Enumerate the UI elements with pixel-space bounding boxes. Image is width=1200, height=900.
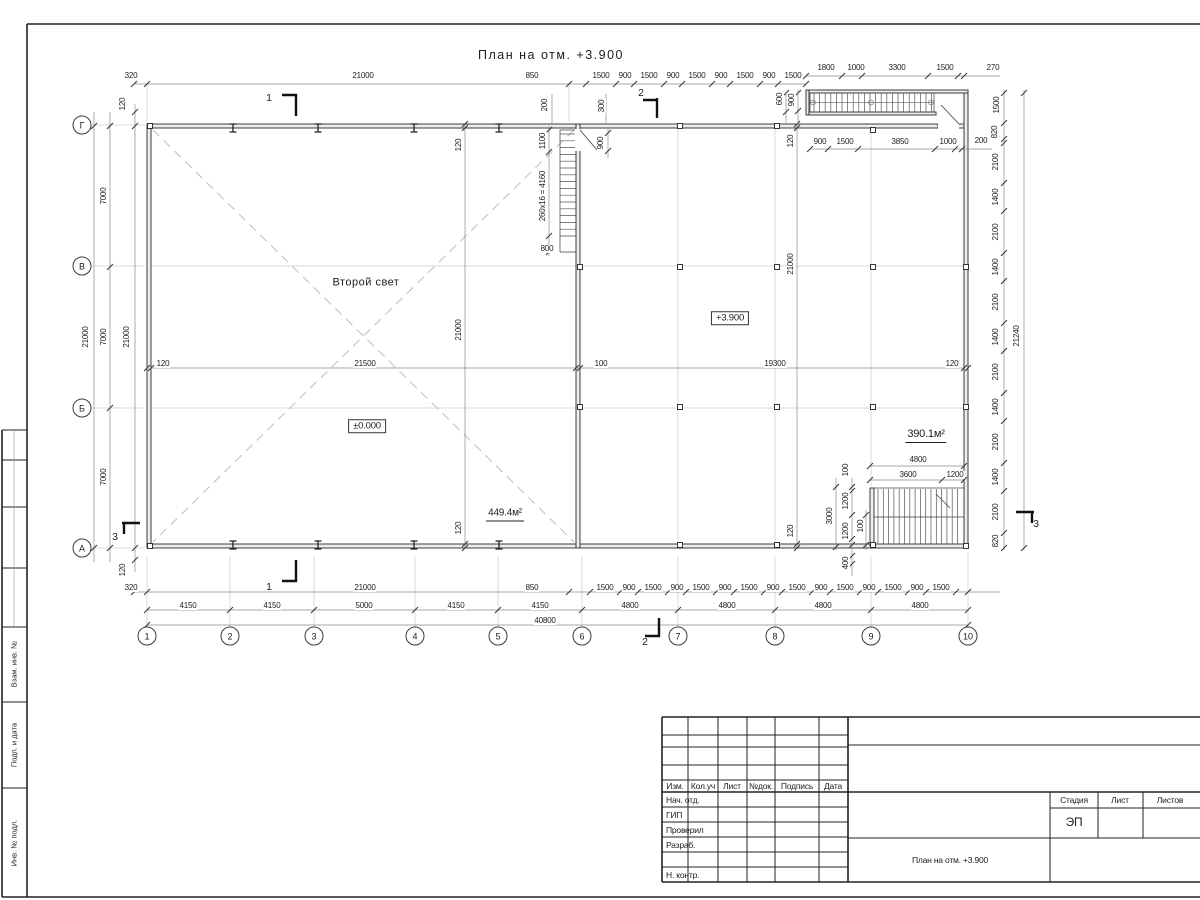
axis-bubble-2: 2 xyxy=(221,627,240,646)
dim-label: 120 xyxy=(455,521,463,536)
annotation-label: 1 xyxy=(265,582,273,593)
annotation-label: 3 xyxy=(1032,519,1040,530)
dim-label: 120 xyxy=(945,360,960,368)
dim-label: 270 xyxy=(986,64,1001,72)
stamp-vzam: Взам. инв. № xyxy=(10,641,19,687)
square-column xyxy=(775,405,780,410)
dim-label: 1200 xyxy=(842,492,850,511)
square-column xyxy=(148,544,153,549)
dim-label: 820 xyxy=(991,125,999,140)
dim-label: 900 xyxy=(788,93,796,108)
dim-label: 3600 xyxy=(899,471,918,479)
dim-label: 1500 xyxy=(788,584,807,592)
dim-label: 40800 xyxy=(533,617,556,625)
dim-label: 1400 xyxy=(992,188,1000,207)
dim-label: 1100 xyxy=(539,132,547,150)
dim-label: 21000 xyxy=(455,318,463,341)
dim-label: 3850 xyxy=(891,138,910,146)
square-column xyxy=(964,405,969,410)
square-column xyxy=(678,265,683,270)
dim-label: 320 xyxy=(124,584,139,592)
dim-label: 1500 xyxy=(596,584,615,592)
axis-bubble-5: 5 xyxy=(489,627,508,646)
stage-label: Стадия xyxy=(1059,796,1089,805)
dim-label: 4800 xyxy=(909,456,928,464)
dim-label: 2100 xyxy=(992,433,1000,452)
square-column xyxy=(148,124,153,129)
axis-bubble-1: 1 xyxy=(138,627,157,646)
columns xyxy=(148,124,969,550)
tb-role-1: ГИП xyxy=(665,811,683,820)
dim-label: 4800 xyxy=(621,602,640,610)
dim-label: 4150 xyxy=(447,602,466,610)
dim-label: 900 xyxy=(862,584,877,592)
dim-label: 1500 xyxy=(640,72,659,80)
tb-header-3: №док. xyxy=(748,782,774,791)
square-column xyxy=(578,265,583,270)
dim-label: 900 xyxy=(766,584,781,592)
stair-top-middle xyxy=(560,130,576,252)
dim-label: 800 xyxy=(540,245,555,253)
square-column xyxy=(871,265,876,270)
dim-label: 1500 xyxy=(736,72,755,80)
dim-label: 5000 xyxy=(355,602,374,610)
dim-label: 900 xyxy=(670,584,685,592)
dim-label: 120 xyxy=(119,97,127,112)
dim-label: 1500 xyxy=(836,584,855,592)
dim-label: 1800 xyxy=(817,64,836,72)
dim-label: 900 xyxy=(813,138,828,146)
axis-bubble-6: 6 xyxy=(573,627,592,646)
void-cross-dashed xyxy=(153,130,574,542)
dim-label: 2100 xyxy=(992,153,1000,172)
walls xyxy=(147,90,968,548)
dim-label: 1500 xyxy=(884,584,903,592)
dim-label: 820 xyxy=(992,534,1000,549)
square-column xyxy=(871,543,876,548)
dim-label: 1500 xyxy=(784,72,803,80)
tb-header-1: Кол.уч xyxy=(690,782,716,791)
annotation-label: 2 xyxy=(637,88,645,99)
dim-label: 850 xyxy=(525,584,540,592)
dim-label: 4150 xyxy=(263,602,282,610)
annotation-label: 3 xyxy=(111,532,119,543)
annotation-label: 2 xyxy=(641,637,649,648)
dim-label: 1500 xyxy=(993,96,1001,115)
dim-label: 1200 xyxy=(946,471,965,479)
dim-label: 4800 xyxy=(814,602,833,610)
annotation-label: 449.4м² xyxy=(486,509,524,522)
axis-bubble-9: 9 xyxy=(862,627,881,646)
dim-label: 21000 xyxy=(123,325,131,348)
dim-label: 1500 xyxy=(740,584,759,592)
square-column xyxy=(678,543,683,548)
dim-label: 200 xyxy=(974,137,989,145)
dim-label: 4800 xyxy=(718,602,737,610)
dim-label: 7000 xyxy=(100,187,108,206)
square-column xyxy=(678,405,683,410)
dim-label: 1500 xyxy=(936,64,955,72)
dim-label: 21000 xyxy=(787,252,795,275)
tb-role-0: Нач. отд. xyxy=(665,796,701,805)
sheet-label: Лист xyxy=(1110,796,1130,805)
dim-label: 900 xyxy=(762,72,777,80)
square-column xyxy=(775,265,780,270)
tb-header-0: Изм. xyxy=(665,782,684,791)
dim-label: 400 xyxy=(842,556,850,571)
dim-label: 1500 xyxy=(644,584,663,592)
square-column xyxy=(964,544,969,549)
dim-label: 21000 xyxy=(353,584,376,592)
dim-label: 21500 xyxy=(353,360,376,368)
axis-bubble-10: 10 xyxy=(959,627,978,646)
tb-header-4: Подпись xyxy=(780,782,814,791)
square-column xyxy=(964,265,969,270)
dim-label: 120 xyxy=(455,138,463,153)
dim-label: 21000 xyxy=(351,72,374,80)
annotation-label: +3.900 xyxy=(711,311,749,325)
annotation-label: План на отм. +3.900 xyxy=(477,49,625,62)
square-column xyxy=(871,405,876,410)
annotation-label: 390.1м² xyxy=(905,429,946,443)
tb-role-3: Разраб. xyxy=(665,841,696,850)
annotation-label: 1 xyxy=(265,93,273,104)
annotation-label: Второй свет xyxy=(332,278,401,289)
square-column xyxy=(678,124,683,129)
dim-label: 1400 xyxy=(992,398,1000,417)
dim-label: 1000 xyxy=(847,64,866,72)
dim-label: 1500 xyxy=(932,584,951,592)
stair-top-right xyxy=(810,93,934,112)
tb-header-5: Дата xyxy=(823,782,843,791)
dim-label: 19300 xyxy=(763,360,786,368)
dim-label: 120 xyxy=(787,524,795,539)
dim-label: 1500 xyxy=(692,584,711,592)
dim-label: 600 xyxy=(776,92,784,107)
dim-label: 3000 xyxy=(826,507,834,526)
axis-bubble-В: В xyxy=(73,257,92,276)
dim-label: 4150 xyxy=(179,602,198,610)
sheets-label: Листов xyxy=(1156,796,1184,805)
axis-bubble-4: 4 xyxy=(406,627,425,646)
drawing-sheet: 3202100085015009001500900150090015009001… xyxy=(0,0,1200,900)
dim-label: 900 xyxy=(597,136,605,151)
dim-label: 1200 xyxy=(842,522,850,541)
dim-label: 3300 xyxy=(888,64,907,72)
dim-label: 1400 xyxy=(992,468,1000,487)
tb-role-2: Проверил xyxy=(665,826,705,835)
dim-label: 1500 xyxy=(688,72,707,80)
dim-label: 100 xyxy=(857,519,865,534)
dim-label: 1400 xyxy=(992,328,1000,347)
dim-label: 100 xyxy=(842,463,850,478)
dim-label: 7000 xyxy=(100,468,108,487)
doc-title: План на отм. +3.900 xyxy=(911,856,989,865)
dim-label: 21000 xyxy=(82,325,90,348)
dim-label: 320 xyxy=(124,72,139,80)
dim-label: 2100 xyxy=(992,503,1000,522)
dim-label: 850 xyxy=(525,72,540,80)
square-column xyxy=(871,128,876,133)
dim-label: 260x16 = 4160 xyxy=(539,170,547,223)
dim-label: 4150 xyxy=(531,602,550,610)
dim-label: 1500 xyxy=(592,72,611,80)
square-column xyxy=(775,543,780,548)
dim-label: 1000 xyxy=(939,138,958,146)
dim-label: 900 xyxy=(718,584,733,592)
tb-header-2: Лист xyxy=(722,782,742,791)
dim-label: 2100 xyxy=(992,223,1000,242)
dim-label: 2100 xyxy=(992,363,1000,382)
stamp-inv: Инв. № подл. xyxy=(10,820,19,867)
axis-bubble-8: 8 xyxy=(766,627,785,646)
dim-label: 120 xyxy=(119,563,127,578)
dim-label: 7000 xyxy=(100,328,108,347)
dim-label: 900 xyxy=(910,584,925,592)
axis-bubble-А: А xyxy=(73,539,92,558)
dim-label: 900 xyxy=(618,72,633,80)
tb-role-5: Н. контр. xyxy=(665,871,700,880)
axis-bubble-Г: Г xyxy=(73,116,92,135)
dim-label: 900 xyxy=(622,584,637,592)
dim-label: 900 xyxy=(714,72,729,80)
annotation-label: ±0.000 xyxy=(348,419,386,433)
dim-label: 300 xyxy=(598,99,606,114)
dim-label: 4800 xyxy=(911,602,930,610)
square-column xyxy=(578,405,583,410)
dim-label: 21240 xyxy=(1013,324,1021,347)
axis-bubble-3: 3 xyxy=(305,627,324,646)
stage-value: ЭП xyxy=(1065,816,1084,828)
dim-label: 1500 xyxy=(836,138,855,146)
stair-bottom-right xyxy=(874,488,964,544)
dim-label: 1400 xyxy=(992,258,1000,277)
dim-label: 120 xyxy=(156,360,171,368)
axis-bubble-Б: Б xyxy=(73,399,92,418)
dim-label: 200 xyxy=(541,98,549,113)
dim-label: 100 xyxy=(594,360,609,368)
dim-label: 900 xyxy=(814,584,829,592)
axis-bubble-7: 7 xyxy=(669,627,688,646)
stamp-podp: Подп. и дата xyxy=(10,723,19,767)
dim-label: 900 xyxy=(666,72,681,80)
dim-label: 2100 xyxy=(992,293,1000,312)
sheet-frame xyxy=(2,24,1200,897)
square-column xyxy=(775,124,780,129)
dim-label: 120 xyxy=(787,134,795,149)
